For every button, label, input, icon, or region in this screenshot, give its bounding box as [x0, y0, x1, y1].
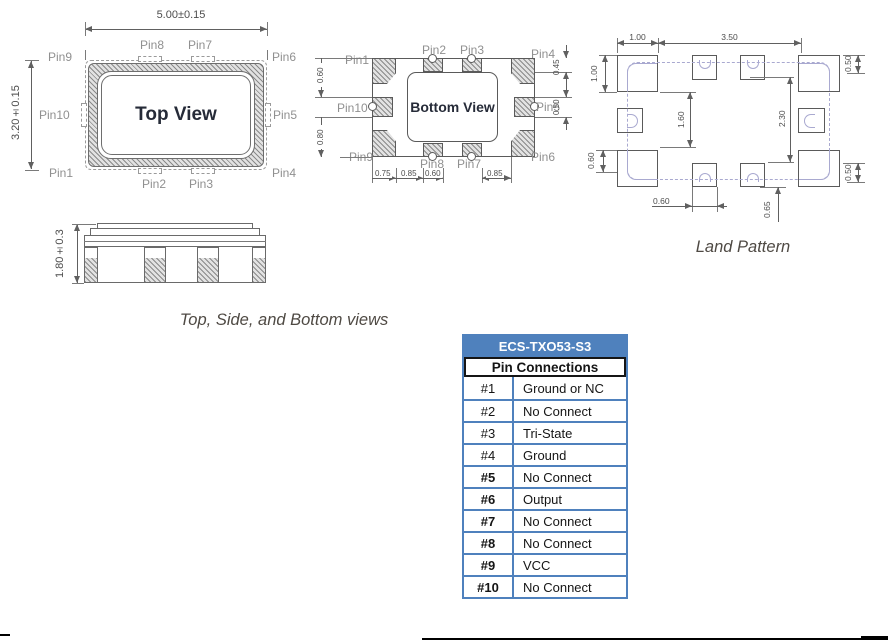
pin-connection: No Connect — [514, 511, 626, 531]
table-title: ECS-TXO53-S3 — [464, 336, 626, 357]
bottom-dim-b2: 0.85 — [400, 169, 418, 178]
ext-line — [372, 157, 373, 183]
ext-line — [72, 283, 84, 284]
table-row: #6 Output — [464, 487, 626, 509]
land-dim-inner-left: 1.60 — [675, 105, 687, 135]
table-subtitle: Pin Connections — [464, 357, 626, 377]
side-view-height-dim: 1.80±0.3 — [54, 227, 66, 281]
pin-number: #9 — [464, 555, 514, 575]
bottom-view-center: Bottom View — [407, 72, 498, 142]
ext-line — [692, 187, 693, 212]
dim-arrow — [687, 140, 693, 147]
ext-line — [25, 170, 39, 171]
pad-stub — [191, 168, 215, 174]
dim-arrow — [563, 117, 569, 124]
top-pin3-label: Pin3 — [189, 177, 213, 191]
pin-number: #8 — [464, 533, 514, 553]
top-pin8-label: Pin8 — [140, 38, 164, 52]
bottom-pin3-label: Pin3 — [460, 43, 484, 57]
side-view-pad — [144, 247, 166, 283]
ext-line — [315, 97, 372, 98]
pad-stub — [265, 103, 271, 127]
land-dim-right-bottom: 0.50 — [843, 161, 853, 185]
bottom-dim-right-mid: 0.50 — [552, 99, 561, 116]
table-row: #2 No Connect — [464, 399, 626, 421]
dim-arrow — [787, 155, 793, 162]
views-caption: Top, Side, and Bottom views — [172, 311, 396, 330]
dim-line — [690, 92, 691, 147]
dim-line — [31, 61, 32, 169]
bottom-dim-right-top: 0.45 — [552, 59, 561, 75]
ext-line — [85, 22, 86, 36]
table-row: #10 No Connect — [464, 575, 626, 597]
bottom-dim-left-bottom: 0.80 — [315, 125, 326, 149]
table-row: #9 VCC — [464, 553, 626, 575]
dim-line — [790, 77, 791, 162]
top-pin7-label: Pin7 — [188, 38, 212, 52]
table-row: #7 No Connect — [464, 509, 626, 531]
dim-arrow — [563, 90, 569, 97]
castellation-notch — [368, 102, 377, 111]
pad-stub — [138, 168, 162, 174]
land-dim-right-top: 0.50 — [843, 52, 853, 76]
land-dim-pad-w: 1.00 — [617, 32, 658, 42]
ext-line — [315, 117, 372, 118]
top-view-label: Top View — [135, 104, 217, 126]
ext-line — [768, 162, 794, 163]
table-row: #4 Ground — [464, 443, 626, 465]
pin-connection: Ground or NC — [514, 377, 626, 399]
pin-number: #2 — [464, 401, 514, 421]
bottom-pin10-label: Pin10 — [337, 101, 368, 115]
pin-connections-table: ECS-TXO53-S3 Pin Connections #1 Ground o… — [462, 334, 628, 599]
bottom-pin1-label: Pin1 — [345, 53, 369, 67]
top-view-height-dim: 3.20±0.15 — [10, 84, 22, 142]
side-view-pad — [252, 247, 266, 283]
dim-arrow — [600, 165, 606, 172]
footer-rule-left — [0, 634, 10, 636]
dim-arrow — [602, 55, 608, 62]
pin-connection: No Connect — [514, 467, 626, 487]
footer-rule-right — [861, 636, 888, 640]
top-view-width-dim: 5.00±0.15 — [130, 9, 232, 21]
pin-connection: Tri-State — [514, 423, 626, 443]
footer-rule — [422, 638, 866, 640]
pin-connection: VCC — [514, 555, 626, 575]
top-pin1-label: Pin1 — [49, 166, 73, 180]
side-view-band-line — [84, 241, 266, 242]
dim-arrow — [504, 175, 511, 181]
pin-connection: Ground — [514, 445, 626, 465]
table-row: #8 No Connect — [464, 531, 626, 553]
bottom-dim-b1: 0.75 — [374, 169, 392, 178]
dim-arrow — [28, 162, 34, 169]
bottom-view-label: Bottom View — [410, 99, 495, 115]
pad-metal — [253, 258, 265, 282]
ext-line — [85, 50, 86, 60]
top-view-lid: Top View — [97, 71, 255, 159]
dim-arrow — [28, 61, 34, 68]
pin-number: #1 — [464, 377, 514, 399]
top-pin10-label: Pin10 — [39, 108, 70, 122]
ext-line — [596, 172, 617, 173]
dim-line — [372, 178, 443, 179]
pin-connection: No Connect — [514, 577, 626, 597]
dim-line — [77, 224, 78, 283]
pin-connection: No Connect — [514, 401, 626, 421]
dim-arrow — [85, 26, 92, 32]
dim-line — [617, 43, 801, 44]
land-dim-bottom: 0.60 — [653, 196, 670, 206]
top-view-lid-inner: Top View — [101, 75, 251, 155]
side-view-body — [84, 246, 266, 283]
pin-number: #4 — [464, 445, 514, 465]
ext-line — [535, 97, 572, 98]
pad-metal — [145, 258, 165, 282]
pin-number: #10 — [464, 577, 514, 597]
land-dim-bottom-right: 0.65 — [762, 197, 772, 223]
dim-arrow — [74, 224, 80, 231]
land-dim-inner-right: 2.30 — [776, 103, 788, 135]
dim-arrow — [685, 203, 692, 209]
pin-connection: Output — [514, 489, 626, 509]
ext-line — [72, 224, 96, 225]
ext-line — [599, 92, 617, 93]
bottom-pin2-label: Pin2 — [422, 43, 446, 57]
land-package-outline — [627, 62, 830, 180]
dim-arrow — [602, 85, 608, 92]
side-view-pad — [197, 247, 219, 283]
dim-arrow — [563, 72, 569, 79]
table-row: #5 No Connect — [464, 465, 626, 487]
ext-line — [660, 147, 696, 148]
pad-stub — [138, 56, 162, 62]
dim-line — [85, 29, 267, 30]
dim-arrow — [855, 163, 861, 170]
pad-metal — [198, 258, 218, 282]
side-view-pad — [84, 247, 98, 283]
bottom-dim-b4: 0.85 — [486, 169, 504, 178]
dim-arrow — [260, 26, 267, 32]
pad-stub — [191, 56, 215, 62]
dim-arrow — [855, 175, 861, 182]
dim-arrow — [74, 276, 80, 283]
dim-arrow — [563, 51, 569, 58]
land-dim-pad-h: 1.00 — [589, 60, 599, 88]
top-pin2-label: Pin2 — [142, 177, 166, 191]
ext-line — [25, 60, 39, 61]
dim-arrow — [855, 55, 861, 62]
dim-arrow — [787, 77, 793, 84]
ext-line — [801, 38, 802, 53]
dim-arrow — [600, 150, 606, 157]
pin-number: #6 — [464, 489, 514, 509]
dim-arrow — [855, 66, 861, 73]
table-row: #3 Tri-State — [464, 421, 626, 443]
pin-number: #7 — [464, 511, 514, 531]
ext-line — [267, 50, 268, 60]
top-pin5-label: Pin5 — [273, 108, 297, 122]
bottom-dim-b3: 0.60 — [424, 169, 442, 178]
table-row: #1 Ground or NC — [464, 377, 626, 399]
pad-stub — [81, 103, 87, 127]
dim-arrow — [687, 92, 693, 99]
dim-arrow — [318, 150, 324, 157]
land-dim-span: 3.50 — [658, 32, 801, 42]
ext-line — [760, 187, 786, 188]
top-pin6-label: Pin6 — [272, 50, 296, 64]
ext-line — [315, 58, 372, 59]
dim-arrow — [717, 203, 724, 209]
pad-metal — [85, 258, 97, 282]
dim-arrow — [318, 90, 324, 97]
bottom-pin7-label: Pin7 — [457, 157, 481, 171]
ext-line — [267, 22, 268, 36]
pin-connection: No Connect — [514, 533, 626, 553]
ext-line — [443, 168, 444, 183]
land-dim-left-low: 0.60 — [586, 148, 596, 174]
top-pin4-label: Pin4 — [272, 166, 296, 180]
top-pin9-label: Pin9 — [48, 50, 72, 64]
dim-arrow — [775, 187, 781, 194]
ext-line — [340, 157, 372, 158]
pin-number: #5 — [464, 467, 514, 487]
bottom-dim-left-top: 0.60 — [315, 63, 326, 87]
land-pattern-caption: Land Pattern — [688, 238, 798, 257]
pin-number: #3 — [464, 423, 514, 443]
datasheet-drawing-page: 5.00±0.15 3.20±0.15 Top View Pin9 Pin8 P… — [0, 0, 888, 641]
ext-line — [396, 168, 397, 183]
ext-line — [511, 157, 512, 183]
bottom-pin6-label: Pin6 — [531, 150, 555, 164]
